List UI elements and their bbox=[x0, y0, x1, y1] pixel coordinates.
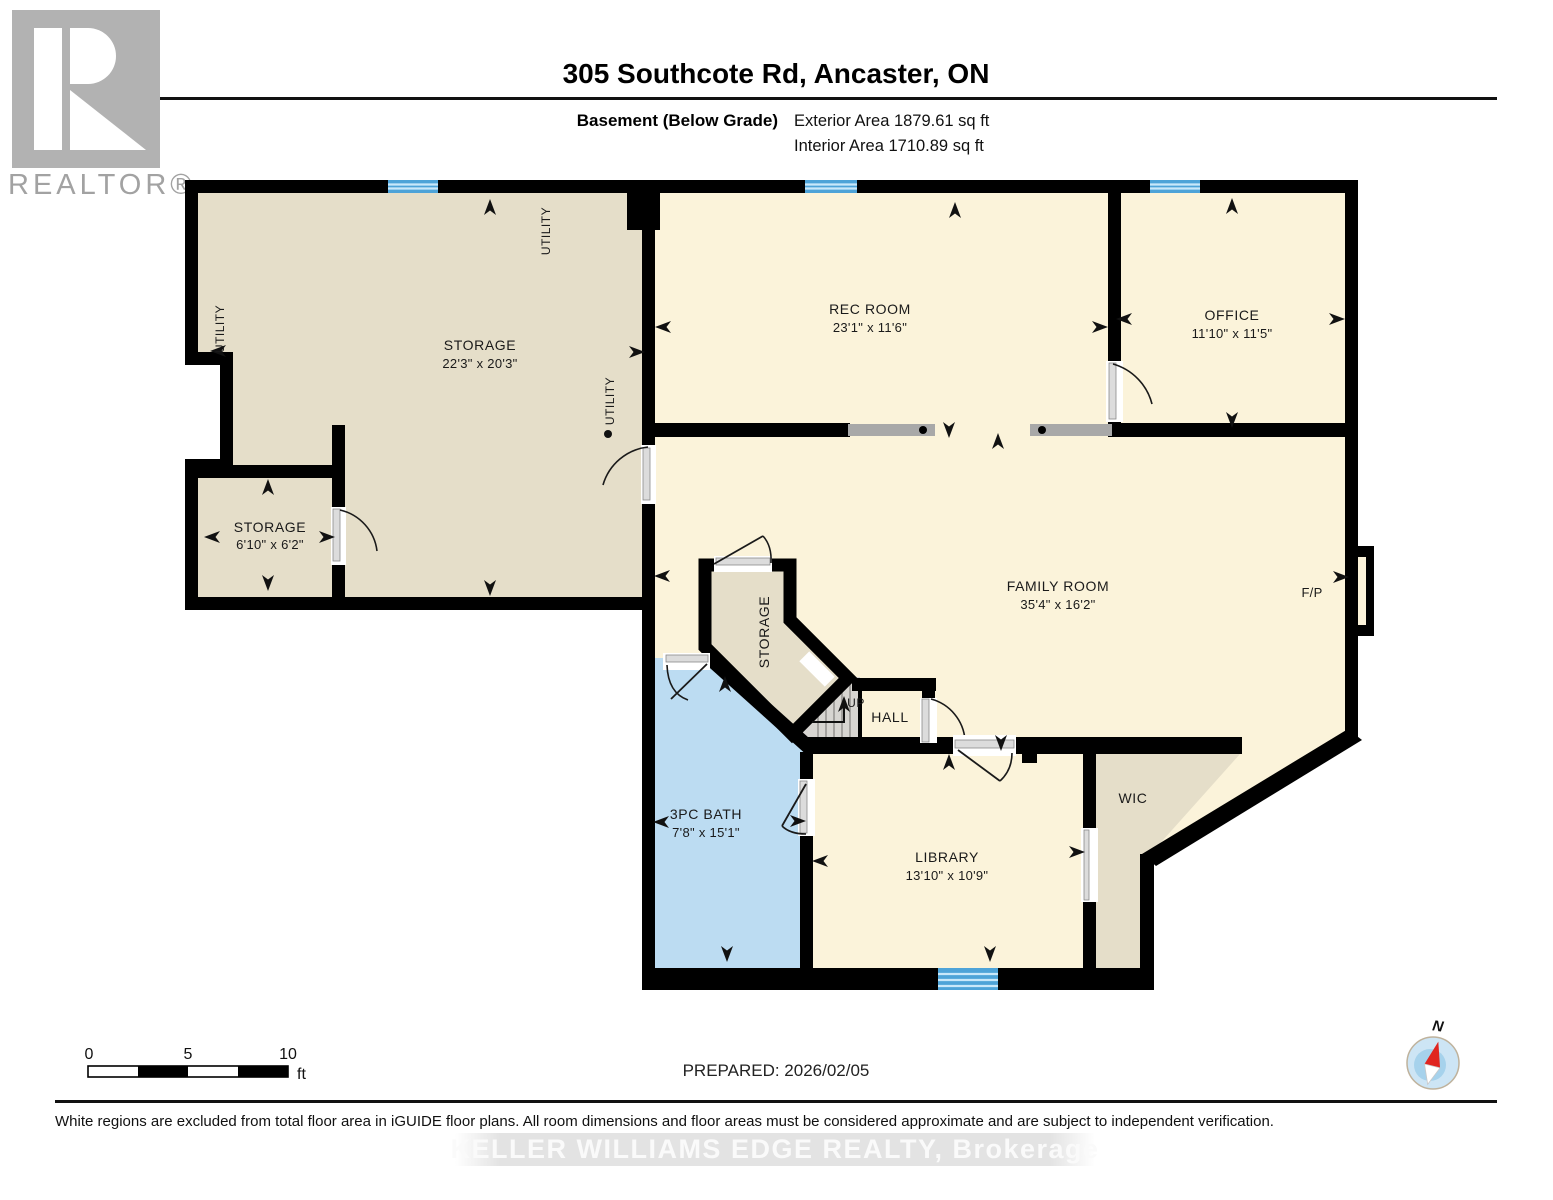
realtor-label: REALTOR® bbox=[8, 169, 196, 201]
scale-bar: 0 5 10 ft bbox=[85, 1046, 307, 1083]
room-label-rec-room: REC ROOM bbox=[829, 301, 911, 317]
room-dims-storage-small: 6'10" x 6'2" bbox=[236, 537, 304, 552]
footer: White regions are excluded from total fl… bbox=[55, 1100, 1497, 1166]
interior-area: Interior Area 1710.89 sq ft bbox=[794, 137, 984, 155]
compass-north-label: N bbox=[1431, 1017, 1445, 1036]
room-dims-family-room: 35'4" x 16'2" bbox=[1020, 597, 1095, 612]
utility-label-left: UTILITY bbox=[213, 305, 227, 353]
disclaimer-text: White regions are excluded from total fl… bbox=[55, 1113, 1274, 1130]
room-label-storage-main: STORAGE bbox=[444, 337, 516, 353]
utility-label-right: UTILITY bbox=[603, 377, 617, 425]
room-label-family-room: FAMILY ROOM bbox=[1007, 578, 1110, 594]
room-dims-library: 13'10" x 10'9" bbox=[906, 868, 989, 883]
room-label-wic: WIC bbox=[1118, 790, 1147, 806]
room-label-storage-small: STORAGE bbox=[234, 519, 306, 535]
header-divider bbox=[55, 97, 1497, 100]
window-icon bbox=[938, 968, 998, 990]
compass-icon: N bbox=[1407, 1017, 1459, 1089]
prepared-date: PREPARED: 2026/02/05 bbox=[683, 1061, 870, 1080]
room-label-office: OFFICE bbox=[1205, 307, 1260, 323]
utility-point-marker bbox=[604, 430, 612, 438]
floorplan: STORAGE 22'3" x 20'3" STORAGE 6'10" x 6'… bbox=[185, 180, 1374, 990]
stairs-label: UP bbox=[847, 696, 865, 710]
floor-label: Basement (Below Grade) bbox=[577, 111, 778, 130]
window-icon bbox=[388, 180, 438, 193]
footer-divider bbox=[55, 1100, 1497, 1103]
scale-tick-5: 5 bbox=[184, 1046, 193, 1063]
room-dims-rec-room: 23'1" x 11'6" bbox=[833, 320, 907, 335]
scale-tick-0: 0 bbox=[85, 1046, 94, 1063]
watermark-text: KELLER WILLIAMS EDGE REALTY, Brokerage bbox=[450, 1134, 1099, 1164]
realtor-logo-icon: REALTOR® bbox=[8, 10, 196, 201]
header: 305 Southcote Rd, Ancaster, ON Basement … bbox=[55, 58, 1497, 155]
floorplan-page: 305 Southcote Rd, Ancaster, ON Basement … bbox=[0, 0, 1553, 1200]
scale-unit: ft bbox=[297, 1066, 306, 1083]
window-icon bbox=[1150, 180, 1200, 193]
exterior-area: Exterior Area 1879.61 sq ft bbox=[794, 112, 990, 130]
room-label-bath: 3PC BATH bbox=[670, 806, 742, 822]
room-label-storage-diagonal: STORAGE bbox=[756, 596, 772, 668]
page-title: 305 Southcote Rd, Ancaster, ON bbox=[563, 58, 990, 89]
room-dims-storage-main: 22'3" x 20'3" bbox=[442, 356, 517, 371]
room-label-library: LIBRARY bbox=[915, 849, 979, 865]
room-label-hall: HALL bbox=[871, 709, 908, 725]
window-icon bbox=[805, 180, 857, 193]
utility-label-top: UTILITY bbox=[539, 207, 553, 255]
scale-tick-10: 10 bbox=[279, 1046, 297, 1063]
room-dims-bath: 7'8" x 15'1" bbox=[672, 825, 740, 840]
room-dims-office: 11'10" x 11'5" bbox=[1192, 326, 1273, 341]
fireplace-label: F/P bbox=[1301, 585, 1322, 600]
